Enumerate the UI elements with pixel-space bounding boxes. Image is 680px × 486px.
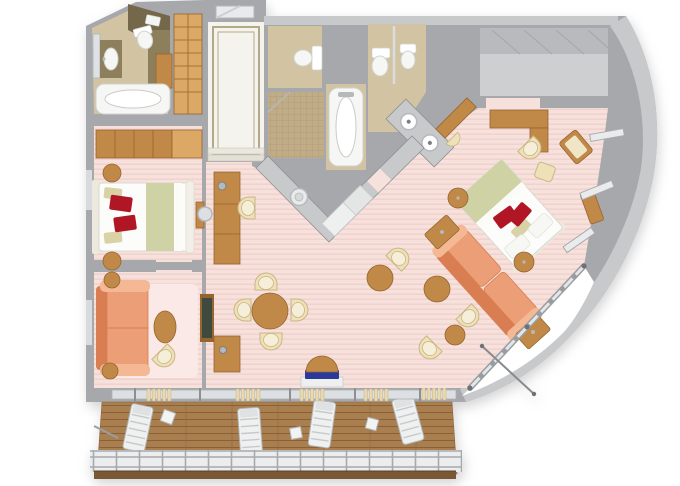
guest-red-pillow-1 — [109, 195, 133, 213]
dining-chair-west — [234, 299, 251, 321]
nightstand-upper-knob — [456, 196, 459, 199]
dining-chair-east — [291, 299, 308, 321]
foyer-marble-floor — [208, 22, 264, 160]
guest-red-pillow-2 — [113, 215, 137, 233]
end-cabinet-upper-knob — [440, 230, 444, 234]
round-side-table-1 — [367, 265, 393, 291]
desk — [490, 110, 548, 128]
end-cabinet-lower-knob — [531, 330, 535, 334]
left-window-1 — [86, 170, 92, 210]
guest-nightstand-top — [103, 164, 121, 182]
top-wall-highlight — [264, 16, 618, 25]
balcony — [90, 395, 462, 479]
nightstand-lower-knob — [522, 260, 525, 263]
sink-faucet — [102, 57, 105, 60]
guest-bedroom — [92, 130, 212, 270]
hall-wardrobe — [174, 14, 202, 114]
deck-side-table-2 — [290, 427, 303, 440]
guest-sheet-fold — [174, 183, 182, 251]
veranda-door-wall — [112, 388, 456, 401]
round-side-table-2 — [424, 276, 450, 302]
guest-footboard — [186, 181, 194, 253]
left-window-2 — [86, 300, 92, 345]
dining-chair-south — [260, 333, 282, 350]
master-tub-basin — [336, 97, 356, 157]
railing-fascia — [94, 471, 456, 479]
lounge-tub-chair — [238, 197, 255, 219]
floor-plan — [0, 0, 680, 486]
foyer-step-1 — [208, 148, 264, 154]
dining-chair-north — [255, 273, 277, 290]
wood-cabinet — [156, 54, 172, 88]
end-table-bottom — [102, 363, 118, 379]
foyer-step-2 — [208, 155, 264, 161]
vanity-sink — [104, 48, 118, 70]
closet-back-wall — [480, 28, 608, 54]
tv-screen — [202, 298, 212, 338]
dining-table — [252, 293, 288, 329]
cabinet-2 — [214, 336, 240, 372]
corner-cabinet — [172, 130, 202, 158]
guest-khaki-pillow-2 — [104, 231, 123, 244]
end-table-top — [104, 272, 120, 288]
guest-nightstand-bottom — [103, 252, 121, 270]
tub-faucet — [338, 92, 354, 97]
round-mirror — [198, 207, 212, 221]
bathroom-mirror — [93, 34, 100, 78]
bathtub-basin — [105, 90, 161, 108]
walk-in-closet — [478, 28, 610, 110]
guest-green-coverlet — [146, 183, 174, 251]
deck-railing — [90, 450, 462, 472]
suite-plan — [86, 0, 657, 479]
oval-coffee-table — [154, 311, 176, 343]
entry-foyer — [208, 6, 264, 161]
closet-opening — [486, 98, 540, 110]
sun-lounger-2 — [237, 407, 262, 454]
cabinet-2-lamp — [220, 347, 227, 354]
mosaic-shower-floor — [268, 92, 324, 158]
bidet — [400, 44, 416, 69]
sideboard-lamp — [218, 182, 226, 190]
guest-headboard — [92, 180, 99, 254]
bar-sink-drain — [295, 193, 303, 201]
deck-side-table-3 — [365, 417, 378, 430]
round-side-table-3 — [445, 325, 465, 345]
